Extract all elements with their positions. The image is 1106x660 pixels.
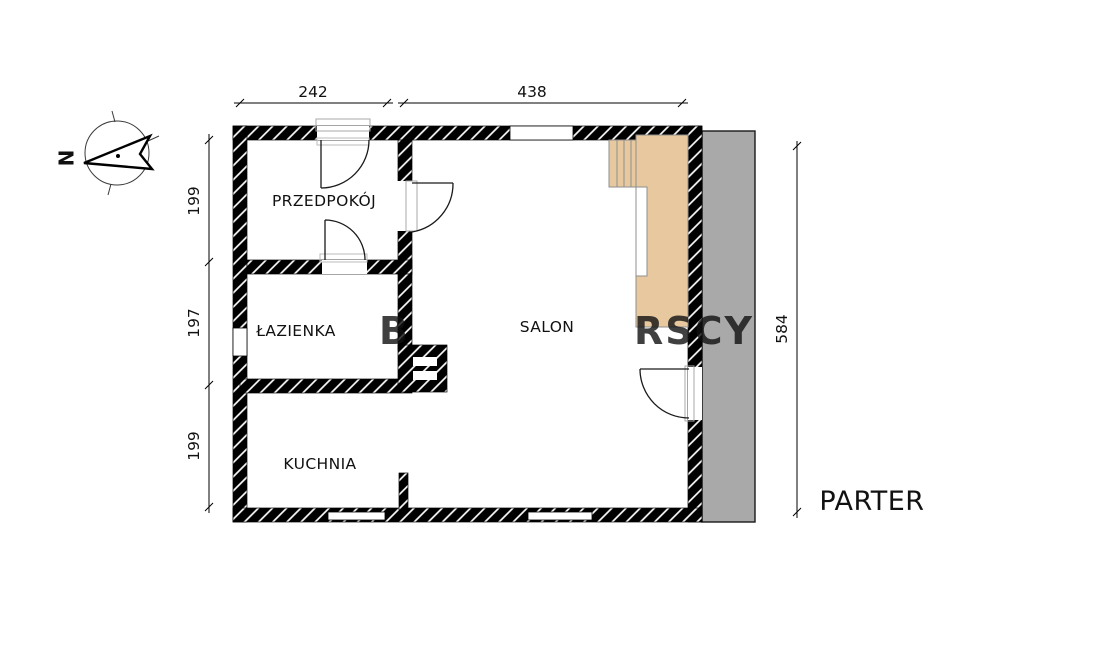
wall-stub-kitchen-livingroom (399, 473, 408, 510)
north-label: N (54, 150, 78, 167)
stair-steps (609, 140, 636, 187)
watermark-fragment-left: B (379, 309, 410, 353)
dim-top-livingroom: 438 (517, 83, 547, 101)
floor-title: PARTER (819, 486, 924, 517)
dim-right-total: 584 (773, 314, 791, 344)
dim-left-kitchen: 199 (185, 431, 203, 461)
floor-plan: N 242 438 199 197 199 584 (0, 0, 1106, 660)
compass-north-indicator: N (54, 111, 160, 195)
watermark-fragment-right: RSCY (634, 309, 754, 353)
wall-exterior-top (233, 126, 702, 140)
staircase (609, 135, 688, 327)
floor-plan-canvas: N 242 438 199 197 199 584 (0, 0, 1106, 660)
window-bottom-kitchen (328, 512, 385, 520)
north-arrow-icon (84, 136, 152, 169)
terrace-door-swing (640, 369, 689, 418)
flue-slot-top (413, 357, 437, 366)
wall-exterior-bottom (233, 508, 702, 522)
room-label-kitchen: KUCHNIA (283, 455, 356, 473)
flue-slot-bottom (413, 371, 437, 380)
dim-left-bathroom: 197 (185, 308, 203, 338)
room-label-bathroom: ŁAZIENKA (255, 322, 336, 340)
stair-void (636, 187, 647, 276)
room-label-hallway: PRZEDPOKÓJ (272, 191, 376, 210)
dim-left-hallway: 199 (185, 186, 203, 216)
entrance-door-swing (321, 140, 369, 188)
window-top-livingroom (510, 126, 573, 140)
hallway-livingroom-door-opening (397, 181, 413, 231)
terrace-door-opening (688, 367, 702, 420)
dim-top-hallway: 242 (298, 83, 328, 101)
room-label-livingroom: SALON (520, 318, 575, 336)
window-bottom-livingroom (528, 512, 592, 520)
wall-bathroom-kitchen (240, 379, 412, 393)
compass-center-dot (116, 154, 120, 158)
window-left-bathroom (233, 328, 247, 356)
hallway-livingroom-door-swing (412, 183, 453, 232)
wall-exterior-left (233, 126, 247, 522)
